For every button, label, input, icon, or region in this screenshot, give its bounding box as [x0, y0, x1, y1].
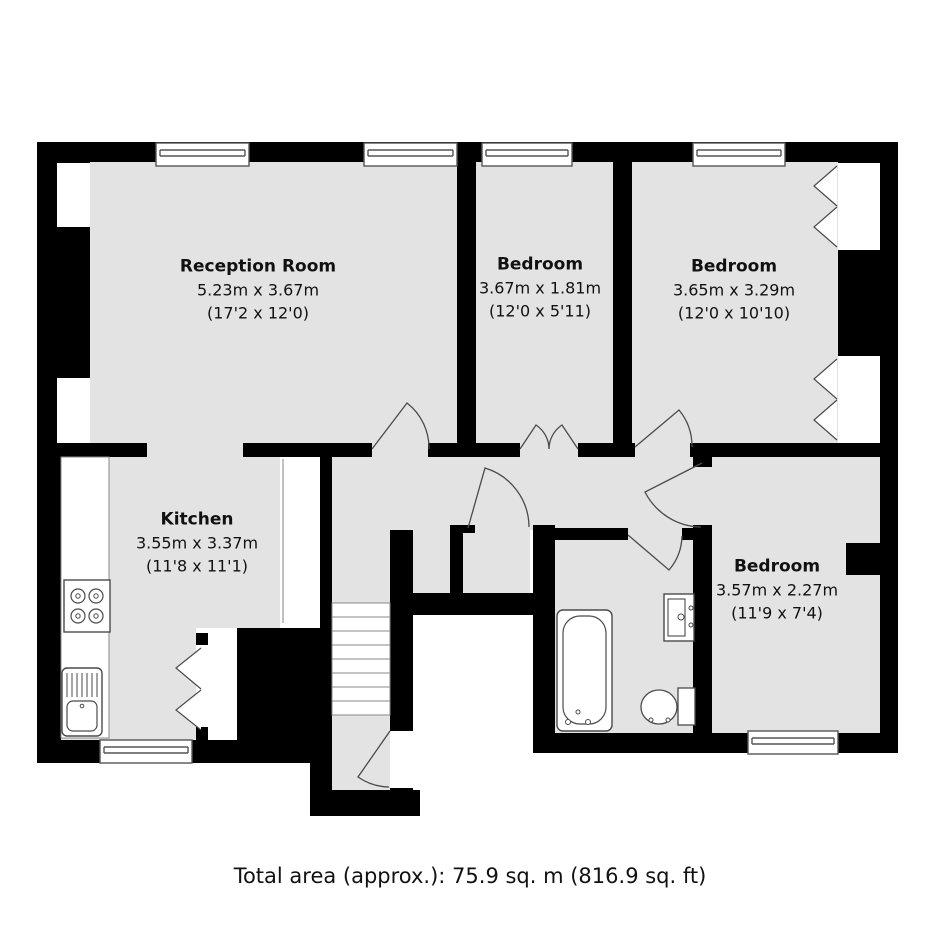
bedroom-right-label: Bedroom 3.65m x 3.29m (12'0 x 10'10) — [673, 256, 795, 325]
room-size-imperial: (11'8 x 11'1) — [136, 555, 258, 578]
room-name: Bedroom — [479, 254, 601, 277]
floorplan-drawing — [0, 0, 940, 940]
window — [693, 143, 785, 166]
wardrobe-recess-upper — [838, 163, 880, 250]
room-size-imperial: (11'9 x 7'4) — [716, 602, 838, 625]
room-size-metric: 3.57m x 2.27m — [716, 579, 838, 602]
room-name: Bedroom — [716, 556, 838, 579]
understair-cupboard-cavity — [208, 645, 237, 727]
front-door-opening — [390, 731, 413, 788]
window — [482, 143, 572, 166]
room-size-metric: 5.23m x 3.67m — [180, 279, 336, 302]
kitchen-opening — [147, 443, 243, 457]
window — [364, 143, 457, 166]
toilet — [641, 688, 695, 725]
room-size-imperial: (12'0 x 10'10) — [673, 302, 795, 325]
reception-alcove-upper — [57, 163, 90, 227]
room-size-imperial: (12'0 x 5'11) — [479, 300, 601, 323]
reception-doorway — [372, 443, 428, 457]
window — [100, 740, 192, 763]
hallway-floor — [332, 457, 693, 530]
floorplan-page: Reception Room 5.23m x 3.67m (17'2 x 12'… — [0, 0, 940, 940]
room-size-imperial: (17'2 x 12'0) — [180, 302, 336, 325]
bathtub — [557, 610, 612, 731]
window — [156, 143, 249, 166]
room-size-metric: 3.55m x 3.37m — [136, 532, 258, 555]
bedroom-back-label: Bedroom 3.57m x 2.27m (11'9 x 7'4) — [716, 556, 838, 625]
washbasin — [664, 594, 694, 641]
window — [748, 731, 838, 754]
kitchen-sink — [62, 668, 102, 736]
room-size-metric: 3.65m x 3.29m — [673, 279, 795, 302]
reception-alcove-lower — [57, 378, 90, 443]
room-name: Reception Room — [180, 256, 336, 279]
room-size-metric: 3.67m x 1.81m — [479, 277, 601, 300]
room-name: Bedroom — [673, 256, 795, 279]
bedroom-front-label: Bedroom 3.67m x 1.81m (12'0 x 5'11) — [479, 254, 601, 323]
reception-room-label: Reception Room 5.23m x 3.67m (17'2 x 12'… — [180, 256, 336, 325]
kitchen-label: Kitchen 3.55m x 3.37m (11'8 x 11'1) — [136, 509, 258, 578]
bathroom-doorway — [628, 528, 682, 540]
kitchen-lightwell — [282, 457, 320, 625]
wardrobe-recess-lower — [838, 356, 880, 443]
hob — [64, 580, 110, 632]
bedroom-right-doorway — [635, 443, 690, 457]
staircase — [332, 603, 390, 715]
stair-top-floor — [332, 530, 390, 603]
room-name: Kitchen — [136, 509, 258, 532]
bedroom-back-doorway — [693, 467, 712, 525]
total-area-text: Total area (approx.): 75.9 sq. m (816.9 … — [234, 864, 707, 888]
hallway-arm-floor — [413, 530, 450, 593]
cupboard-floor — [463, 527, 530, 593]
